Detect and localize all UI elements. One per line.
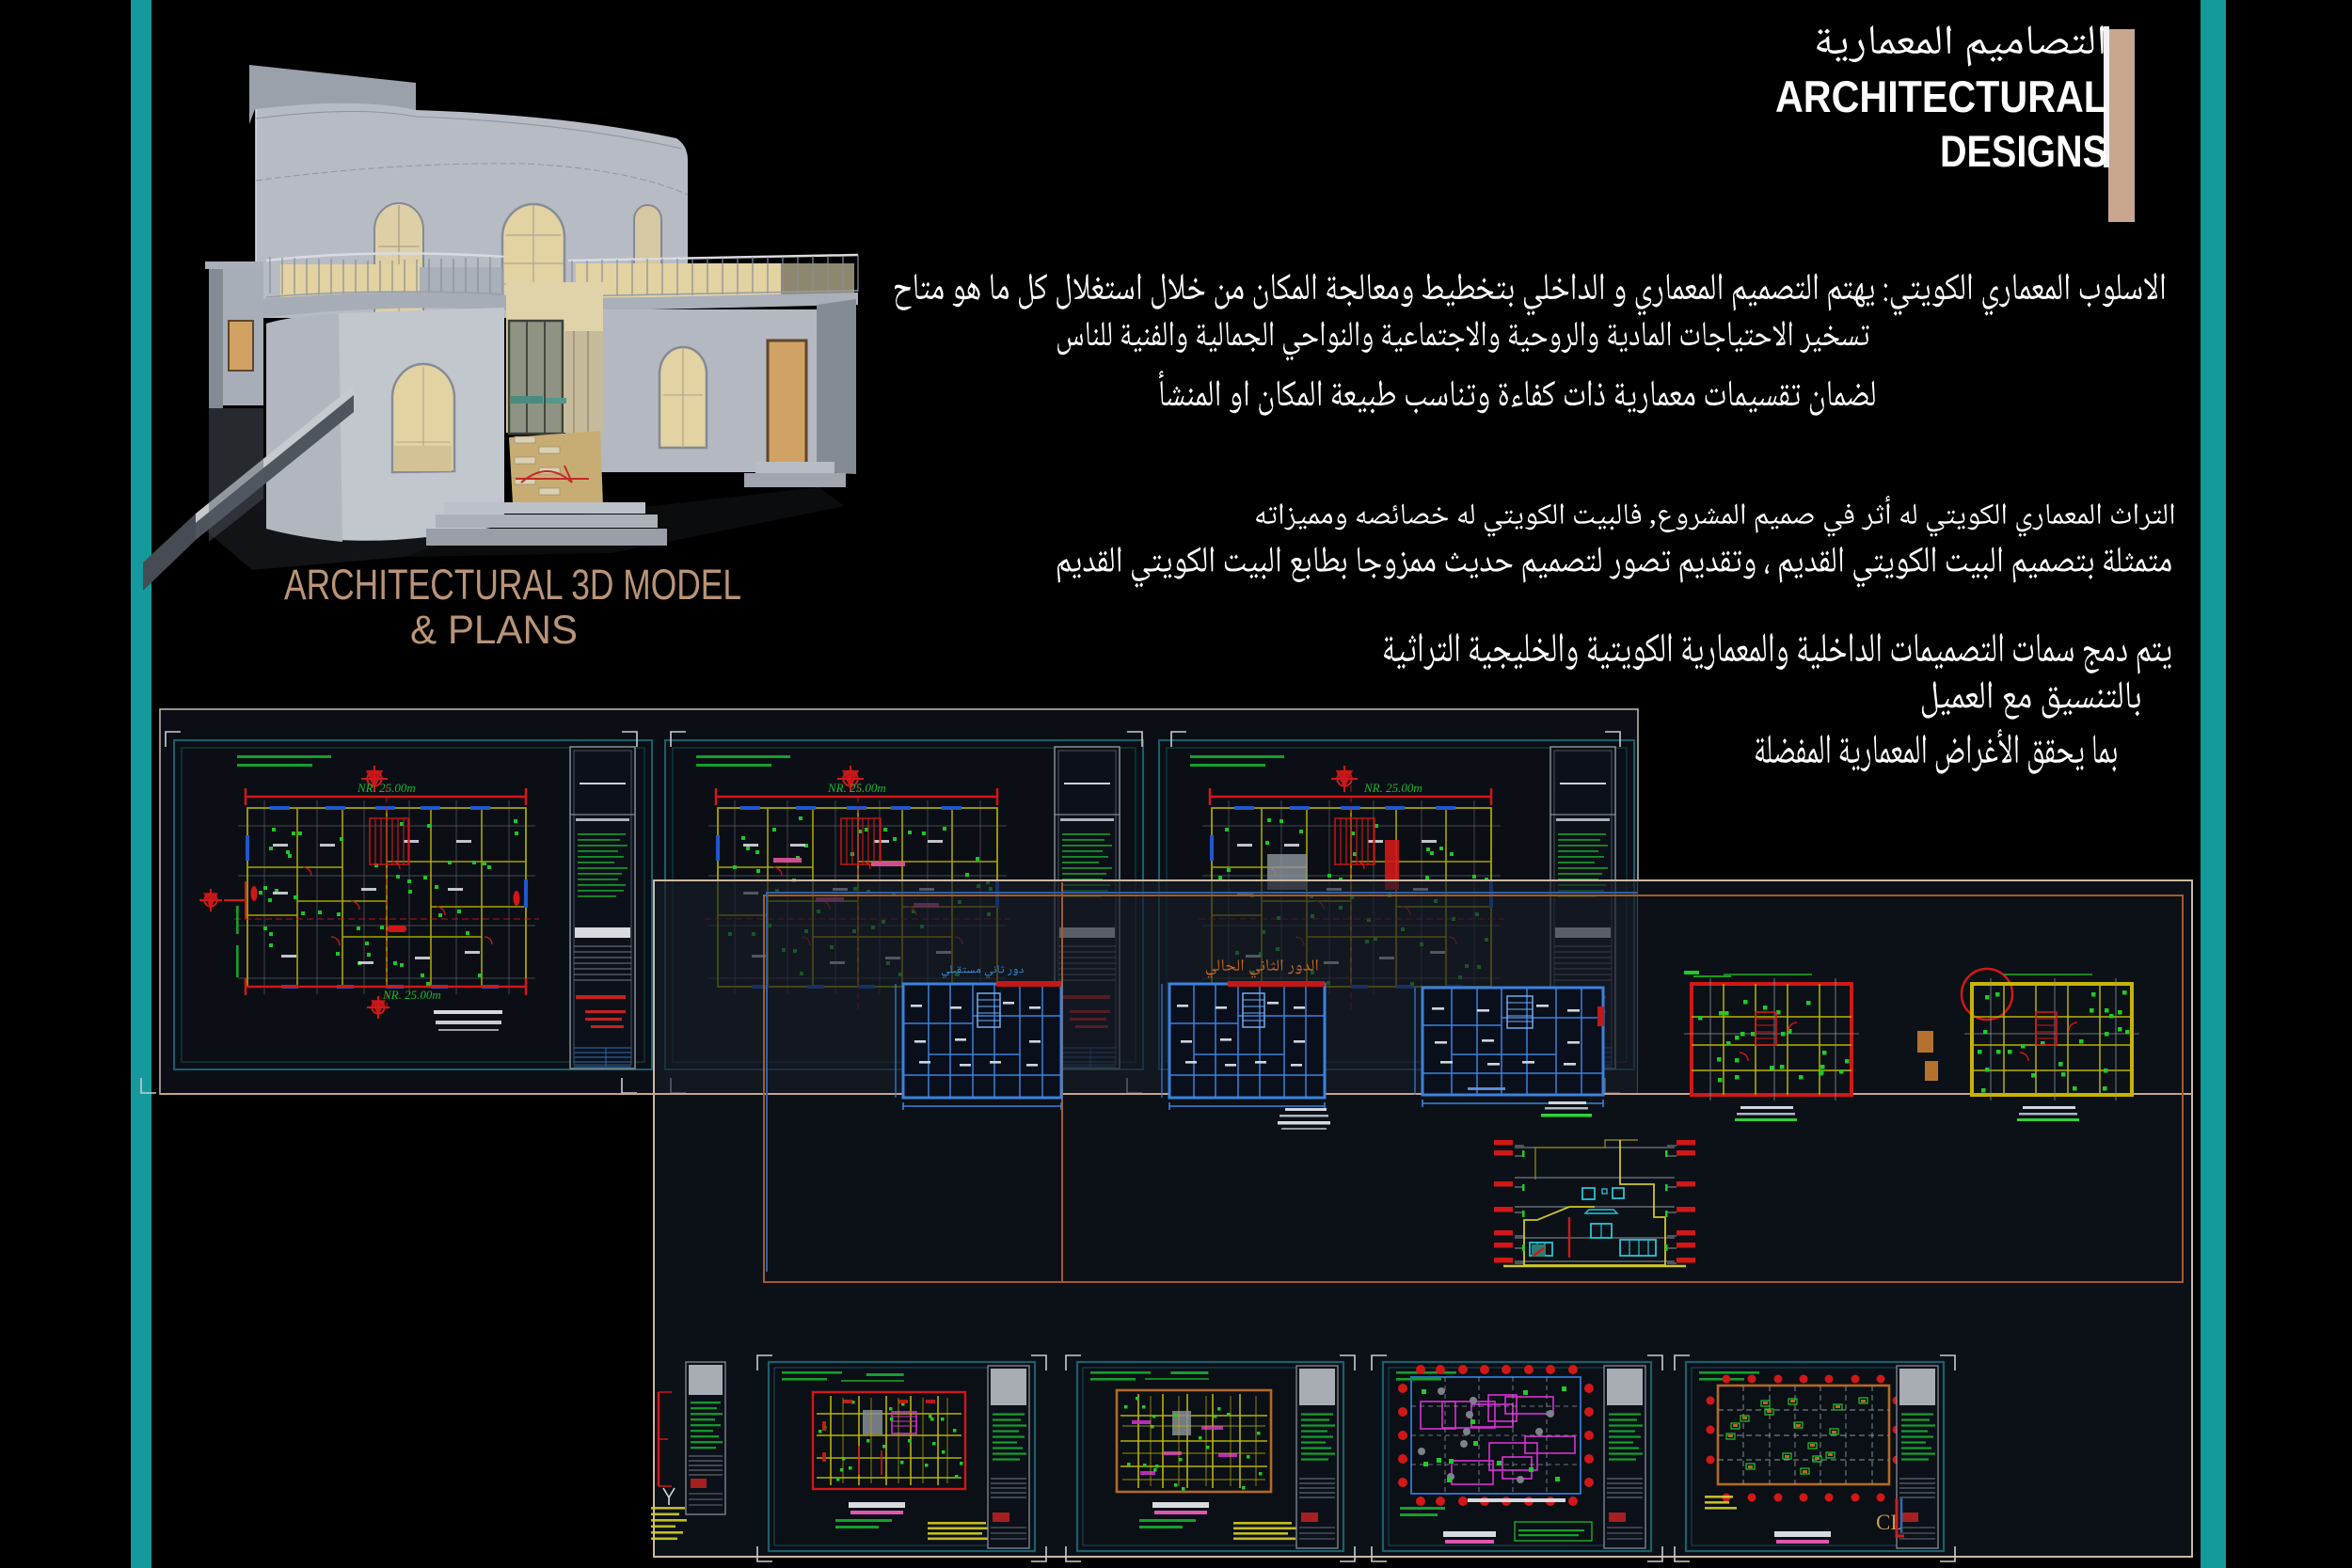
svg-text:ARCHITECTURAL 3D MODEL: ARCHITECTURAL 3D MODEL [284,561,741,609]
svg-text:& PLANS: & PLANS [410,608,578,653]
svg-text:DESIGNS: DESIGNS [1940,126,2107,176]
svg-text:ARCHITECTURAL: ARCHITECTURAL [1775,71,2107,121]
svg-text:NR. 25.00m: NR. 25.00m [1363,781,1422,795]
svg-text:CL: CL [1876,1511,1903,1534]
svg-text:NR. 25.00m: NR. 25.00m [357,781,416,795]
svg-text:NR. 25.00m: NR. 25.00m [382,988,441,1002]
svg-text:NR. 25.00m: NR. 25.00m [827,781,886,795]
